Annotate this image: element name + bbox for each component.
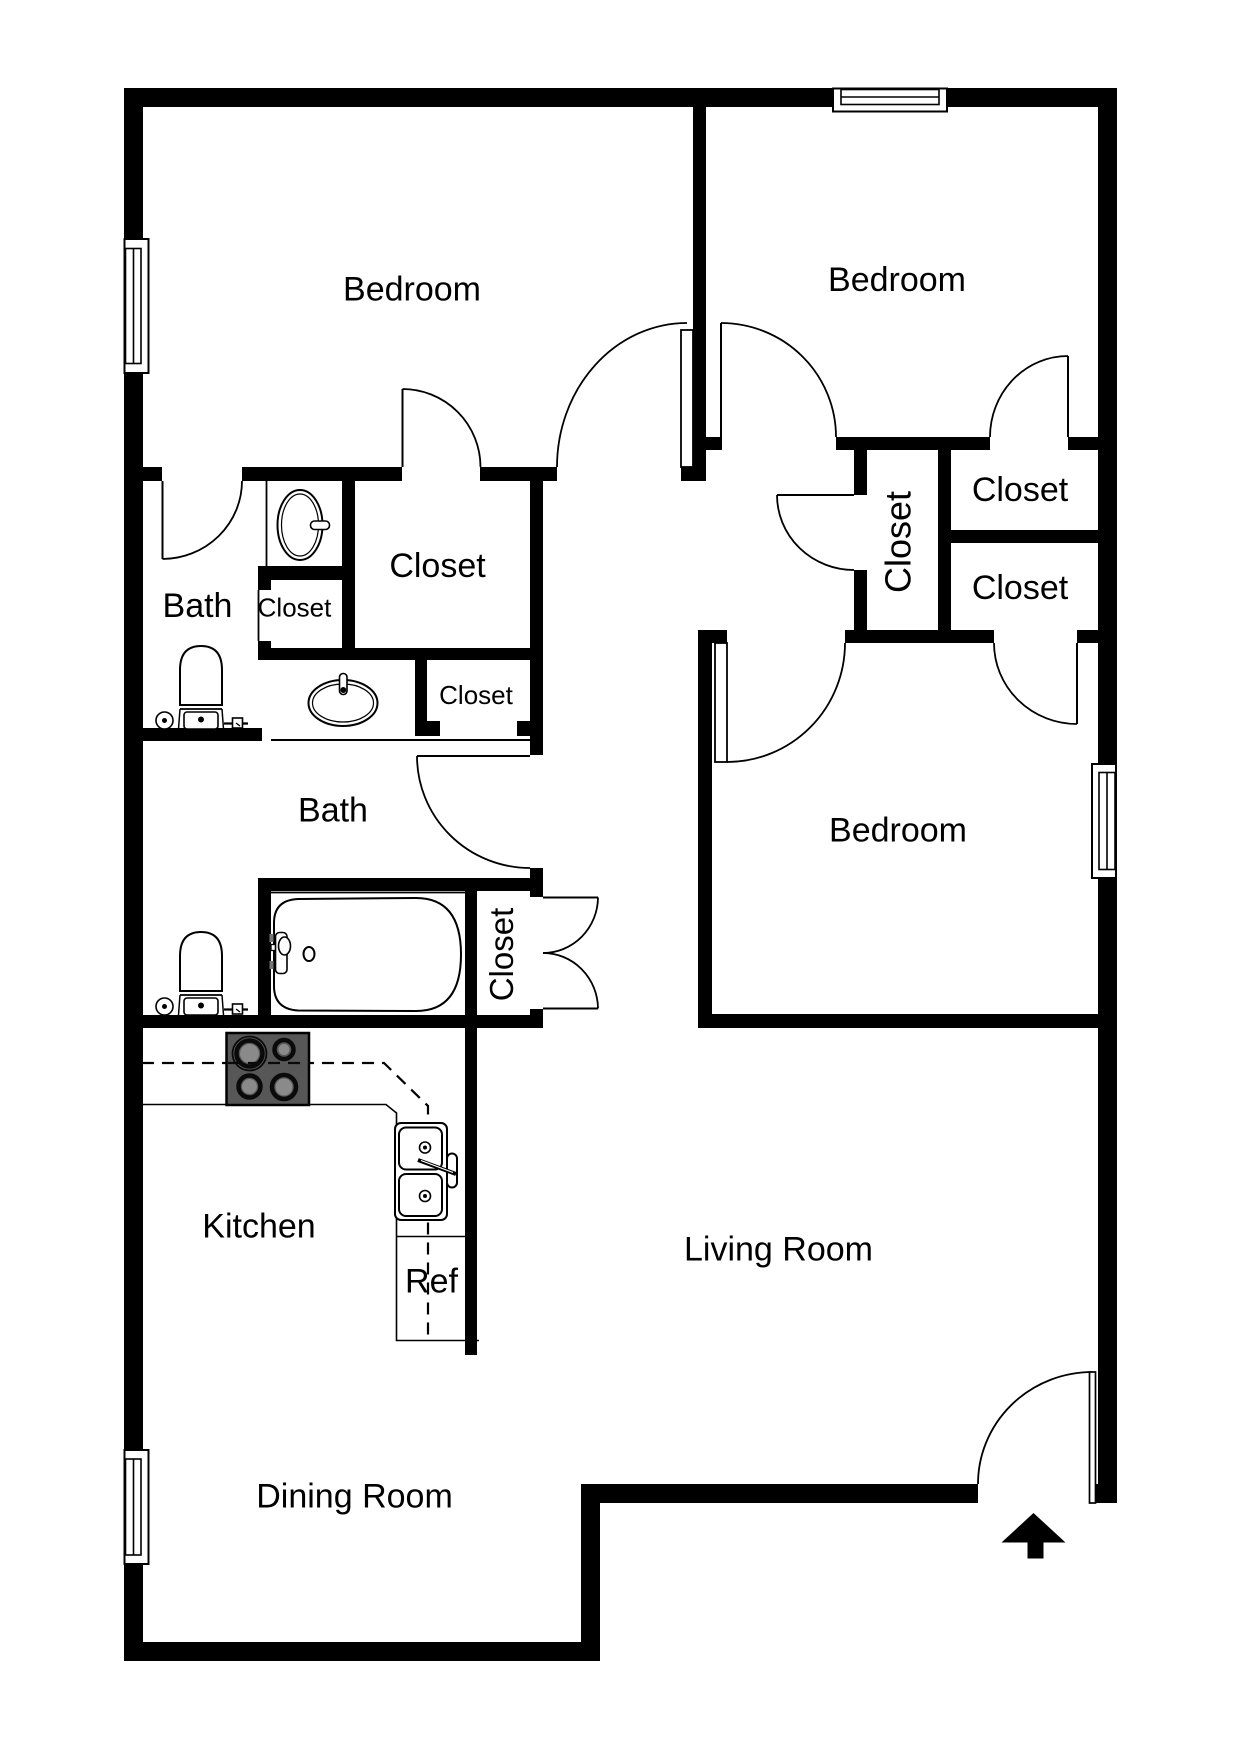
svg-text:Bedroom: Bedroom <box>343 271 481 309</box>
svg-text:Bath: Bath <box>163 587 233 625</box>
svg-text:Bedroom: Bedroom <box>829 812 967 850</box>
svg-text:Closet: Closet <box>258 593 332 623</box>
svg-text:Dining Room: Dining Room <box>256 1478 453 1516</box>
svg-text:Closet: Closet <box>972 569 1069 607</box>
svg-text:Closet: Closet <box>878 491 919 593</box>
svg-text:Bedroom: Bedroom <box>828 261 966 299</box>
svg-text:Living Room: Living Room <box>684 1231 873 1269</box>
svg-text:Closet: Closet <box>972 471 1069 509</box>
svg-text:Closet: Closet <box>483 908 520 1002</box>
svg-text:Kitchen: Kitchen <box>202 1208 315 1246</box>
svg-text:Ref: Ref <box>405 1263 458 1301</box>
svg-text:Closet: Closet <box>439 680 513 710</box>
svg-text:Closet: Closet <box>389 547 486 585</box>
svg-text:Bath: Bath <box>298 792 368 830</box>
